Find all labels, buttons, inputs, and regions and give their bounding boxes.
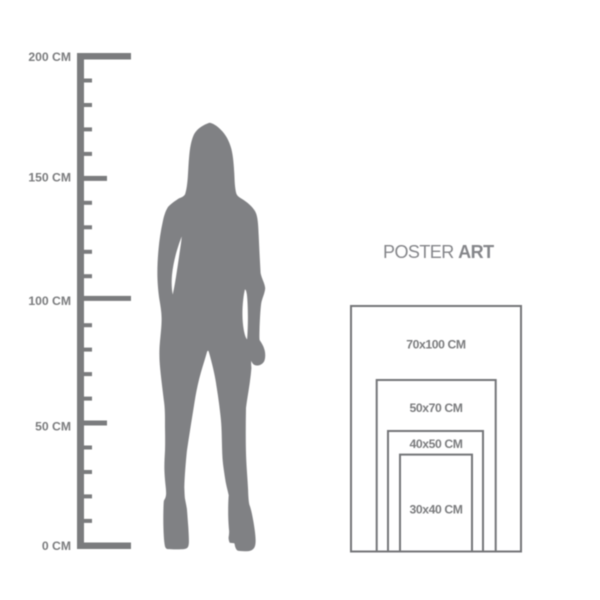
- svg-text:50 CM: 50 CM: [35, 419, 71, 433]
- svg-text:40x50 CM: 40x50 CM: [409, 437, 462, 451]
- svg-text:POSTER ART: POSTER ART: [383, 242, 494, 262]
- svg-text:100 CM: 100 CM: [28, 294, 71, 308]
- svg-text:150 CM: 150 CM: [28, 171, 71, 185]
- svg-text:50x70 CM: 50x70 CM: [409, 401, 462, 415]
- svg-text:70x100 CM: 70x100 CM: [406, 338, 466, 352]
- svg-text:0 CM: 0 CM: [42, 539, 71, 553]
- svg-text:30x40 CM: 30x40 CM: [409, 502, 462, 516]
- svg-text:200 CM: 200 CM: [28, 50, 71, 64]
